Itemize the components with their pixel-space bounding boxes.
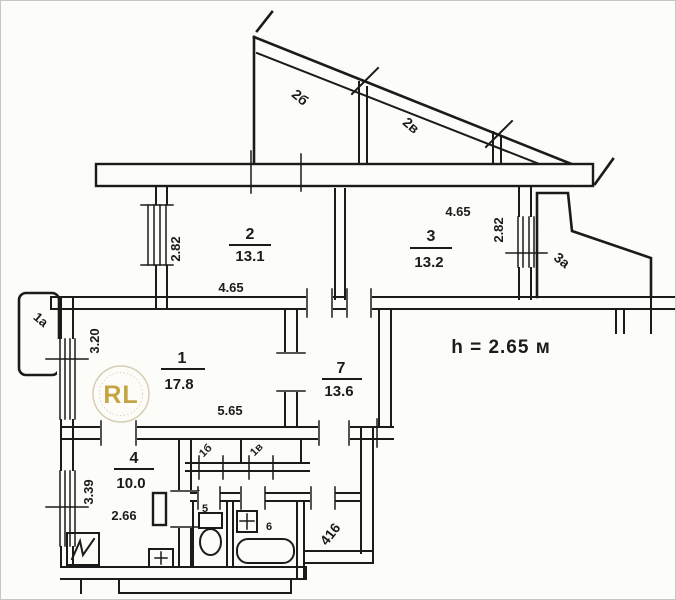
watermark-rl: RL (103, 381, 138, 409)
height-note: h = 2.65 м (451, 337, 551, 358)
watermark: RL (93, 366, 149, 422)
room-7-number: 7 (337, 360, 346, 377)
room-2-number: 2 (246, 226, 255, 243)
lower-walls (61, 427, 373, 593)
room-1-width-dim: 5.65 (217, 403, 242, 418)
balcony-1a (19, 293, 59, 375)
toilet-icon (199, 513, 222, 555)
floorplan-scan: 2 13.1 2.82 4.65 3 13.2 4.65 2.82 1 17.8… (0, 0, 676, 600)
balcony-1a-label: 1а (31, 309, 52, 330)
room-3-number: 3 (427, 228, 436, 245)
room-4-number: 4 (130, 450, 139, 467)
bathtub-icon (237, 539, 294, 563)
upper-rooms-walls (156, 186, 531, 309)
room-4-area: 10.0 (116, 475, 145, 492)
terrace-2b-label: 2б (289, 86, 312, 109)
window-room3 (506, 217, 547, 267)
room-1-depth-dim: 3.20 (87, 328, 102, 353)
balcony-3a-label: 3а (551, 249, 573, 271)
floor-plan-svg: 2 13.1 2.82 4.65 3 13.2 4.65 2.82 1 17.8… (1, 1, 676, 600)
room-2-width-dim: 4.65 (218, 280, 243, 295)
wc-number: 5 (202, 503, 208, 515)
room-3-area: 13.2 (414, 254, 443, 271)
annex-labels: 2б 2в 3а 1а 1б 1в 416 (31, 86, 574, 548)
kitchen-sink-icon (149, 549, 173, 567)
apartment-number: 416 (317, 520, 344, 548)
bath-number: 6 (266, 521, 272, 533)
room-4-width-dim: 2.66 (111, 508, 136, 523)
room-7-area: 13.6 (324, 383, 353, 400)
room-1-number: 1 (178, 350, 187, 367)
washbasin-icon (237, 511, 257, 532)
room-4-depth-dim: 3.39 (81, 479, 96, 504)
room-2-depth-dim: 2.82 (168, 236, 183, 261)
room-2-area: 13.1 (235, 248, 264, 265)
room-3-depth-dim: 2.82 (491, 217, 506, 242)
room-3-width-dim: 4.65 (445, 204, 470, 219)
closet-1v-label: 1в (248, 441, 266, 459)
room-1-area: 17.8 (164, 376, 193, 393)
window-room1 (46, 339, 88, 419)
kitchen-door-leaf (153, 493, 166, 525)
mid-wall (51, 289, 676, 317)
